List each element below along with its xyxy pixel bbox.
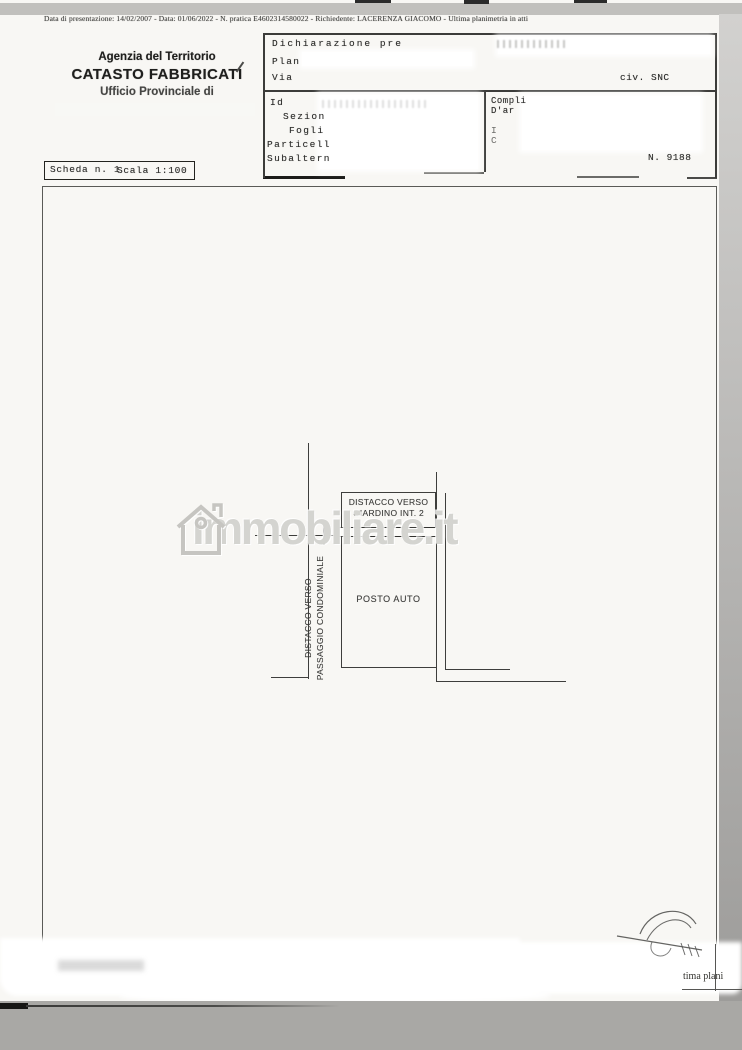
scan-artifact-dash (574, 0, 607, 3)
form-box-bottom-segment (687, 177, 717, 179)
whiteout-patch (302, 52, 472, 66)
scan-artifact-line (26, 1005, 340, 1007)
form-box-border (263, 33, 717, 35)
whiteout-patch (55, 103, 255, 116)
agency-name: Agenzia del Territorio (62, 51, 252, 63)
scan-artifact-dash (464, 0, 489, 4)
provincial-office-label: Ufficio Provinciale di (62, 86, 252, 98)
plan-frame-border (42, 186, 717, 187)
passage-setback-line2: PASSAGGIO CONDOMINIALE (314, 538, 326, 698)
parking-area-wall (341, 667, 436, 668)
signature-mark (612, 898, 708, 964)
form-box-border (715, 33, 717, 178)
plan-wall-line (436, 681, 566, 682)
erased-text-smudge (497, 40, 567, 48)
section-label: Sezion (283, 111, 326, 122)
form-box-bottom-segment (424, 172, 484, 174)
form-box-border (263, 33, 265, 178)
scanned-cadastral-document: Data di presentazione: 14/02/2007 - Data… (0, 0, 742, 1050)
sheet-number-label: Scheda n. 1 (50, 164, 120, 175)
page-border-fragment (715, 944, 716, 991)
footer-underline (682, 989, 742, 990)
erased-text-smudge (322, 100, 428, 108)
identifiers-label: Id (270, 97, 284, 108)
house-icon (170, 499, 232, 557)
scan-artifact-dash (355, 0, 391, 3)
sheet-field-label: Fogli (289, 125, 325, 136)
scan-artifact-blob (0, 1003, 28, 1009)
plan-label: Plan (272, 56, 300, 67)
plan-wall-line (445, 669, 510, 670)
plan-frame-border (42, 186, 43, 946)
declaration-label: Dichiarazione pre (272, 38, 403, 49)
subunit-label: Subaltern (267, 153, 331, 164)
street-label: Via (272, 72, 293, 83)
form-box-bottom-segment (263, 176, 345, 179)
protocol-number: N. 9188 (648, 152, 691, 163)
civic-number-value: civ. SNC (620, 72, 670, 83)
form-box-vertical-divider (484, 92, 486, 172)
immobiliare-watermark: immobiliare.it (170, 497, 456, 559)
footer-partial-text: tima plani (683, 971, 723, 982)
sheet-scale-box: Scheda n. 1 Scala 1:100 (44, 161, 195, 180)
form-box-bottom-segment (577, 176, 639, 178)
complex-label-line1: Compli (491, 96, 526, 106)
complex-label-line2: D'ar (491, 106, 515, 116)
whiteout-patch (522, 96, 700, 150)
passage-setback-label: DISTACCO VERSO PASSAGGIO CONDOMINIALE (302, 538, 338, 698)
right-column-partial: C (491, 135, 498, 146)
passage-setback-line1: DISTACCO VERSO (302, 538, 314, 698)
parking-spot-label: POSTO AUTO (341, 594, 436, 604)
faded-stamp-smudge (58, 960, 144, 971)
agency-header: Agenzia del Territorio CATASTO FABBRICAT… (62, 51, 252, 98)
scan-right-edge (719, 14, 742, 1002)
presentation-meta-line: Data di presentazione: 14/02/2007 - Data… (44, 14, 528, 23)
form-box-divider (263, 90, 717, 92)
registry-title: CATASTO FABBRICATI (62, 66, 252, 83)
parcel-label: Particell (267, 139, 331, 150)
scale-label: Scala 1:100 (117, 165, 187, 176)
scan-bottom-band (0, 1001, 742, 1050)
plan-frame-border (716, 186, 717, 976)
